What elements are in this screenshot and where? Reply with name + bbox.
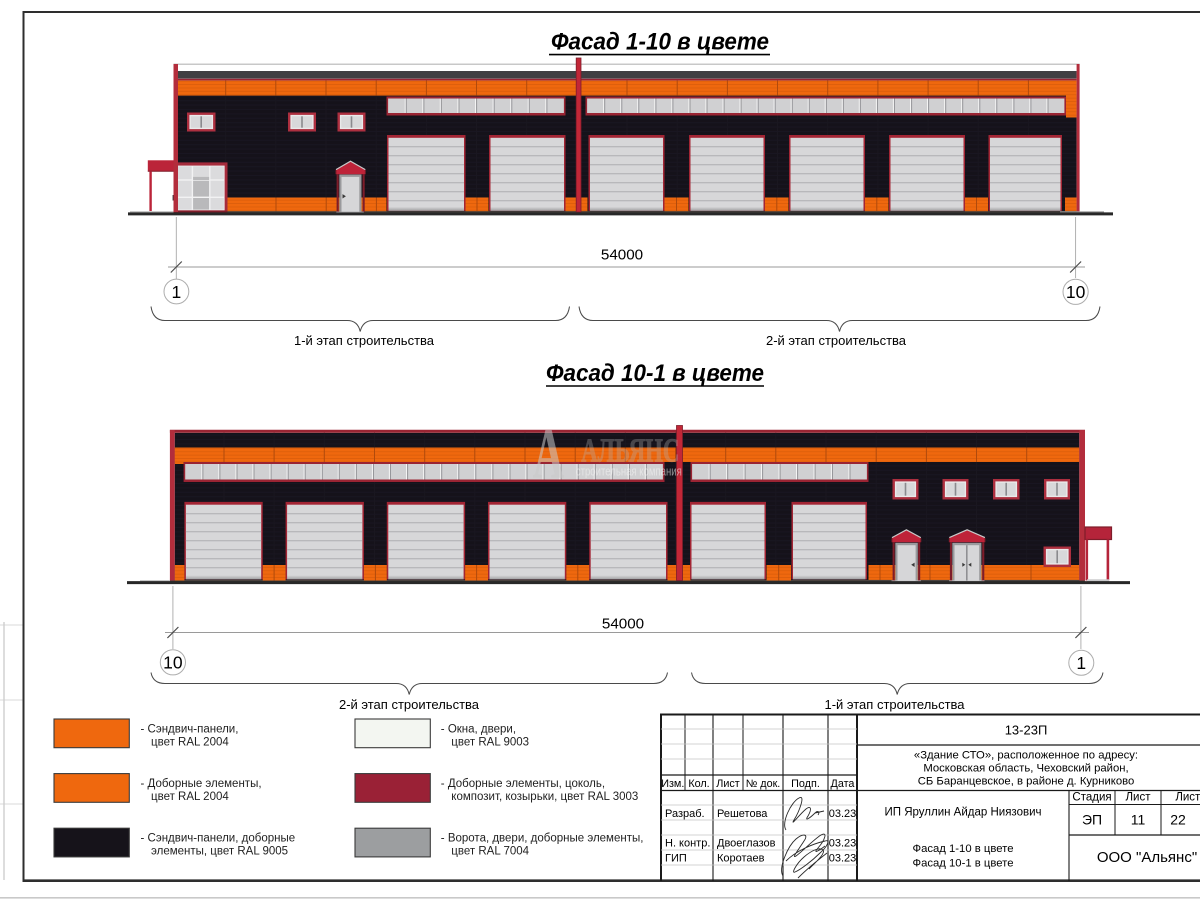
svg-text:«Здание СТО», расположенное по: «Здание СТО», расположенное по адресу: — [914, 750, 1138, 762]
svg-text:Кол.: Кол. — [688, 778, 709, 790]
svg-text:54000: 54000 — [602, 616, 644, 633]
svg-text:- Окна, двери,: - Окна, двери, — [441, 723, 516, 735]
svg-text:Коротаев: Коротаев — [717, 853, 765, 865]
svg-text:Фасад 10-1 в цвете: Фасад 10-1 в цвете — [912, 858, 1013, 870]
svg-text:- Доборные элементы, цоколь,: - Доборные элементы, цоколь, — [441, 778, 605, 790]
svg-text:СБ Баранцевское, в районе д. К: СБ Баранцевское, в районе д. Курниково — [918, 776, 1135, 788]
svg-text:Н. контр.: Н. контр. — [665, 838, 710, 850]
svg-text:- Ворота, двери, доборные элем: - Ворота, двери, доборные элементы, — [441, 833, 644, 845]
svg-text:цвет RAL 2004: цвет RAL 2004 — [151, 791, 229, 803]
svg-text:А: А — [533, 414, 565, 494]
svg-text:Подп.: Подп. — [791, 778, 820, 790]
svg-text:11: 11 — [1131, 812, 1146, 828]
svg-text:Двоеглазов: Двоеглазов — [717, 838, 776, 850]
svg-text:цвет RAL 2004: цвет RAL 2004 — [151, 736, 229, 748]
svg-text:Стадия: Стадия — [1072, 792, 1111, 804]
svg-text:54000: 54000 — [601, 247, 643, 264]
svg-text:Фасад 1-10 в цвете: Фасад 1-10 в цвете — [551, 29, 769, 56]
svg-text:03.23: 03.23 — [829, 808, 857, 820]
svg-text:- Доборные элементы,: - Доборные элементы, — [141, 778, 262, 790]
svg-text:10: 10 — [163, 653, 183, 673]
svg-text:№ док.: № док. — [746, 778, 781, 790]
svg-text:Изм.: Изм. — [661, 778, 684, 790]
svg-text:цвет RAL 7004: цвет RAL 7004 — [451, 846, 529, 858]
svg-text:Решетова: Решетова — [717, 808, 768, 820]
svg-text:2-й этап строительства: 2-й этап строительства — [766, 333, 907, 348]
svg-text:22: 22 — [1170, 812, 1186, 828]
svg-text:ГИП: ГИП — [665, 853, 687, 865]
svg-text:1: 1 — [172, 282, 182, 302]
svg-text:элементы, цвет RAL 9005: элементы, цвет RAL 9005 — [151, 846, 288, 858]
svg-text:Лист: Лист — [716, 778, 740, 790]
svg-text:строительная компания: строительная компания — [576, 465, 682, 479]
svg-text:1: 1 — [1076, 653, 1086, 673]
svg-text:Листов: Листов — [1175, 792, 1200, 804]
svg-text:10: 10 — [1066, 282, 1086, 302]
svg-text:ИП Яруллин Айдар Ниязович: ИП Яруллин Айдар Ниязович — [885, 807, 1042, 819]
svg-text:Фасад 1-10 в цвете: Фасад 1-10 в цвете — [912, 843, 1013, 855]
svg-text:Фасад 10-1 в цвете: Фасад 10-1 в цвете — [546, 360, 764, 387]
svg-text:Московская область, Чеховский: Московская область, Чеховский район, — [923, 763, 1128, 775]
svg-text:композит, козырьки, цвет RAL 3: композит, козырьки, цвет RAL 3003 — [451, 791, 638, 803]
svg-text:Дата: Дата — [831, 778, 855, 790]
svg-text:Лист: Лист — [1126, 792, 1152, 804]
svg-text:2-й этап строительства: 2-й этап строительства — [339, 697, 480, 712]
svg-text:1-й этап строительства: 1-й этап строительства — [294, 333, 435, 348]
svg-text:- Сэндвич-панели, доборные: - Сэндвич-панели, доборные — [141, 833, 296, 845]
svg-text:ЭП: ЭП — [1082, 812, 1102, 828]
svg-text:ООО "Альянс": ООО "Альянс" — [1097, 849, 1197, 866]
svg-text:03.23: 03.23 — [829, 853, 857, 865]
svg-text:Разраб.: Разраб. — [665, 808, 705, 820]
svg-text:цвет RAL 9003: цвет RAL 9003 — [451, 736, 529, 748]
svg-text:- Сэндвич-панели,: - Сэндвич-панели, — [141, 723, 239, 735]
svg-text:03.23: 03.23 — [829, 838, 857, 850]
svg-text:13-23П: 13-23П — [1005, 723, 1048, 738]
svg-text:1-й этап строительства: 1-й этап строительства — [824, 697, 965, 712]
